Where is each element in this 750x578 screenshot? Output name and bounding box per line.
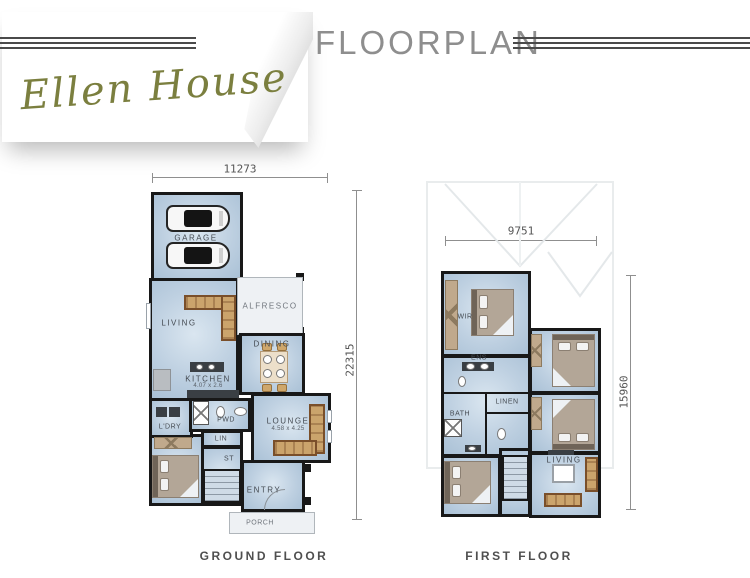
label-linen-first: LINEN xyxy=(495,399,518,406)
window xyxy=(327,410,332,423)
label-entry: ENTRY xyxy=(247,486,281,495)
basin xyxy=(466,363,475,370)
shower xyxy=(193,401,209,425)
coffee-table xyxy=(552,464,575,483)
blanket-fold xyxy=(493,315,513,335)
staircase xyxy=(502,455,529,501)
room-laundry xyxy=(149,398,193,438)
lounge-sofa xyxy=(273,440,317,456)
label-ensuite: ENS xyxy=(471,355,487,362)
ground-floor-caption: GROUND FLOOR xyxy=(200,549,329,563)
sofa xyxy=(221,295,236,341)
roof-outline xyxy=(0,0,750,578)
first-height-dimension: 15960 xyxy=(618,375,631,408)
blanket-fold xyxy=(472,485,490,503)
staircase xyxy=(203,469,241,503)
sofa xyxy=(585,457,598,492)
window xyxy=(146,303,151,329)
label-store: ST xyxy=(224,456,234,463)
pillow xyxy=(479,295,488,309)
blanket-fold xyxy=(553,368,571,386)
bed-headboard xyxy=(445,462,450,503)
pillow xyxy=(452,484,461,497)
bed-headboard xyxy=(553,335,594,340)
basin xyxy=(480,363,489,370)
label-living-first: LIVING xyxy=(546,456,581,465)
label-porch: PORCH xyxy=(246,520,274,527)
toilet xyxy=(458,376,466,387)
pillow xyxy=(452,466,461,479)
ground-width-dimension: 11273 xyxy=(223,163,256,176)
place-setting xyxy=(263,369,272,378)
label-alfresco: ALFRESCO xyxy=(242,302,297,311)
robe-closet xyxy=(154,437,192,449)
pillow xyxy=(576,342,589,351)
robe-closet xyxy=(531,334,542,367)
car-trunk xyxy=(219,211,223,226)
car xyxy=(166,205,230,232)
washer xyxy=(156,407,167,417)
pillow xyxy=(558,342,571,351)
robe-closet xyxy=(531,397,542,430)
car-cabin xyxy=(184,210,212,227)
place-setting xyxy=(276,355,285,364)
bed-headboard xyxy=(553,444,594,449)
dining-chair xyxy=(262,384,272,392)
pillow xyxy=(160,478,169,491)
dining-chair xyxy=(277,384,287,392)
ground-height-dimension: 22315 xyxy=(344,343,357,376)
label-living: LIVING xyxy=(161,319,196,328)
window xyxy=(327,430,332,443)
first-floor-caption: FIRST FLOOR xyxy=(465,549,573,563)
place-setting xyxy=(276,369,285,378)
kitchen-bench xyxy=(187,390,239,398)
bed xyxy=(152,455,199,498)
basin xyxy=(468,446,476,451)
pillow xyxy=(558,433,571,442)
label-wir: WIR xyxy=(457,314,472,321)
basin xyxy=(234,407,247,416)
wall-partition xyxy=(485,394,487,455)
sofa xyxy=(544,493,582,507)
bed-headboard xyxy=(472,290,477,335)
label-powder: PWD xyxy=(217,417,235,424)
bed xyxy=(552,399,595,450)
blanket-fold xyxy=(180,479,198,497)
bed xyxy=(552,334,595,387)
dryer xyxy=(169,407,180,417)
bed xyxy=(444,461,491,504)
first-width-dimension: 9751 xyxy=(508,225,535,238)
label-dining: DINING xyxy=(254,340,291,349)
kitchen-sink xyxy=(196,364,203,370)
pillow xyxy=(576,433,589,442)
floorplan-sheet: Ellen House FLOORPLAN 11273 22315 xyxy=(0,0,750,578)
label-lounge: LOUNGE xyxy=(267,417,310,426)
toilet xyxy=(497,428,506,440)
label-bath: BATH xyxy=(450,411,470,418)
bed-headboard xyxy=(153,456,158,497)
label-lounge-size: 4.58 x 4.25 xyxy=(272,426,305,432)
label-laundry: L'DRY xyxy=(159,424,181,431)
pillow xyxy=(160,460,169,473)
label-garage: GARAGE xyxy=(174,234,217,243)
walk-in-robe-shelves xyxy=(445,280,458,350)
pillow xyxy=(479,315,488,329)
label-kitchen-size: 4.07 x 2.6 xyxy=(193,383,222,389)
car-trunk xyxy=(219,248,223,263)
car-cabin xyxy=(184,247,212,264)
wall-partition xyxy=(487,412,529,414)
fridge xyxy=(153,369,171,391)
tv-unit xyxy=(548,450,574,455)
bathtub xyxy=(444,419,462,437)
label-linen-ground: LIN xyxy=(215,436,227,443)
place-setting xyxy=(263,355,272,364)
car xyxy=(166,242,230,269)
bed xyxy=(471,289,514,336)
blanket-fold xyxy=(553,400,571,418)
kitchen-sink xyxy=(208,364,215,370)
